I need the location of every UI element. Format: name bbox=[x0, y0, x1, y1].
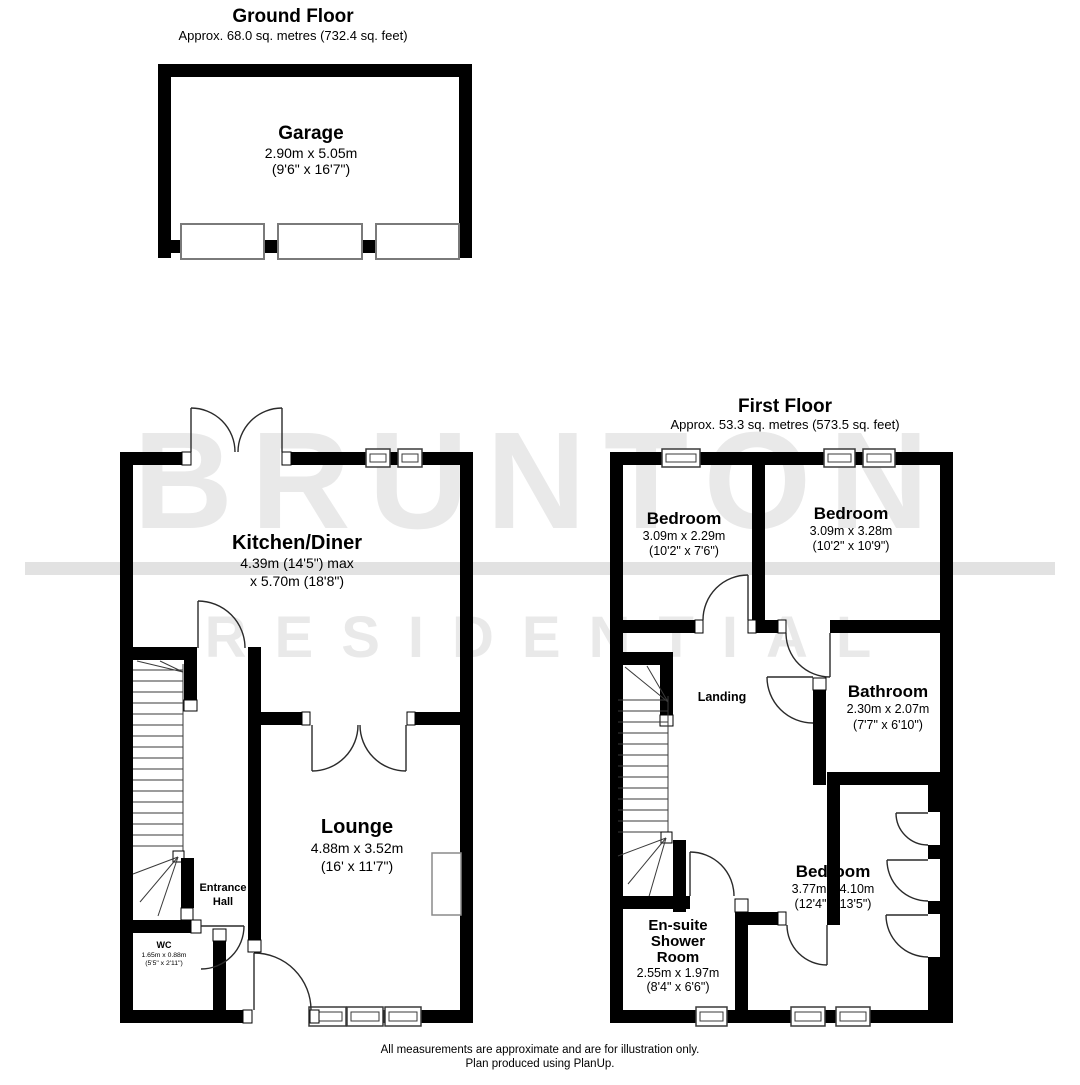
footer: All measurements are approximate and are… bbox=[381, 1044, 700, 1070]
floorplan-canvas: BRUNTON RESIDENTIAL Ground Floor Approx.… bbox=[0, 0, 1080, 1080]
entrance-hall-label-1: Entrance bbox=[199, 882, 246, 894]
garage-dim-metric: 2.90m x 5.05m bbox=[265, 145, 358, 161]
garage-label: Garage bbox=[278, 123, 343, 144]
wc-dim-imperial: (5'5" x 2'11") bbox=[145, 960, 183, 967]
ensuite-dim-imperial: (8'4" x 6'6") bbox=[647, 980, 710, 994]
footer-disclaimer: All measurements are approximate and are… bbox=[381, 1044, 700, 1056]
lounge-dim-imperial: (16' x 11'7") bbox=[321, 858, 393, 874]
ground-floor-title: Ground Floor bbox=[232, 6, 354, 27]
kitchen-dim-metric2: x 5.70m (18'8") bbox=[250, 573, 344, 589]
garage-plan: Garage 2.90m x 5.05m (9'6" x 16'7") bbox=[158, 64, 472, 259]
front-door bbox=[254, 953, 311, 1010]
chimney-breast bbox=[432, 853, 461, 915]
lounge-dim-metric: 4.88m x 3.52m bbox=[311, 840, 404, 856]
bedroom1-dim-metric: 3.09m x 2.29m bbox=[643, 529, 726, 543]
stairs-ground-floor bbox=[133, 661, 184, 916]
bathroom-door bbox=[767, 677, 813, 723]
bathroom-dim-imperial: (7'7" x 6'10") bbox=[853, 718, 923, 732]
bedroom3-dim-metric: 3.77m x 4.10m bbox=[792, 882, 875, 896]
garage-door-symbol bbox=[181, 224, 459, 259]
ground-floor-title-block: Ground Floor Approx. 68.0 sq. metres (73… bbox=[178, 6, 407, 43]
ensuite-label-1: En-suite bbox=[648, 917, 707, 934]
bedroom1-dim-imperial: (10'2" x 7'6") bbox=[649, 544, 719, 558]
bedroom1-label: Bedroom bbox=[647, 509, 722, 528]
watermark-band bbox=[25, 562, 1055, 575]
lounge-double-door bbox=[312, 725, 406, 771]
kitchen-label: Kitchen/Diner bbox=[232, 532, 362, 554]
lounge-label: Lounge bbox=[321, 816, 393, 838]
garage-dim-imperial: (9'6" x 16'7") bbox=[272, 161, 350, 177]
floorplan-page: BRUNTON RESIDENTIAL Ground Floor Approx.… bbox=[0, 0, 1080, 1080]
first-floor-title: First Floor bbox=[738, 396, 833, 417]
wc-label: WC bbox=[157, 940, 172, 950]
ensuite-door bbox=[690, 852, 734, 896]
kitchen-dim-metric: 4.39m (14'5") max bbox=[240, 555, 353, 571]
bedroom3-label: Bedroom bbox=[796, 862, 871, 881]
bathroom-dim-metric: 2.30m x 2.07m bbox=[847, 702, 930, 716]
bathroom-label: Bathroom bbox=[848, 682, 928, 701]
bedroom2-dim-imperial: (10'2" x 10'9") bbox=[813, 539, 890, 553]
ensuite-dim-metric: 2.55m x 1.97m bbox=[637, 966, 720, 980]
bedroom3-door bbox=[787, 925, 827, 965]
bedroom3-dim-imperial: (12'4" x 13'5") bbox=[795, 897, 872, 911]
wc-dim-metric: 1.65m x 0.88m bbox=[142, 952, 187, 959]
footer-credit: Plan produced using PlanUp. bbox=[466, 1058, 615, 1070]
bedroom2-dim-metric: 3.09m x 3.28m bbox=[810, 524, 893, 538]
bedroom1-window-symbol bbox=[662, 449, 700, 467]
entrance-hall-label-2: Hall bbox=[213, 896, 233, 908]
ensuite-label-3: Room bbox=[657, 949, 700, 966]
lounge-window-symbols bbox=[309, 1007, 421, 1026]
ensuite-label-2: Shower bbox=[651, 933, 705, 950]
wardrobe-doors bbox=[886, 813, 928, 957]
first-floor-area: Approx. 53.3 sq. metres (573.5 sq. feet) bbox=[670, 417, 899, 432]
landing-label: Landing bbox=[698, 690, 747, 704]
bedroom2-label: Bedroom bbox=[814, 504, 889, 523]
ground-floor-area: Approx. 68.0 sq. metres (732.4 sq. feet) bbox=[178, 28, 407, 43]
